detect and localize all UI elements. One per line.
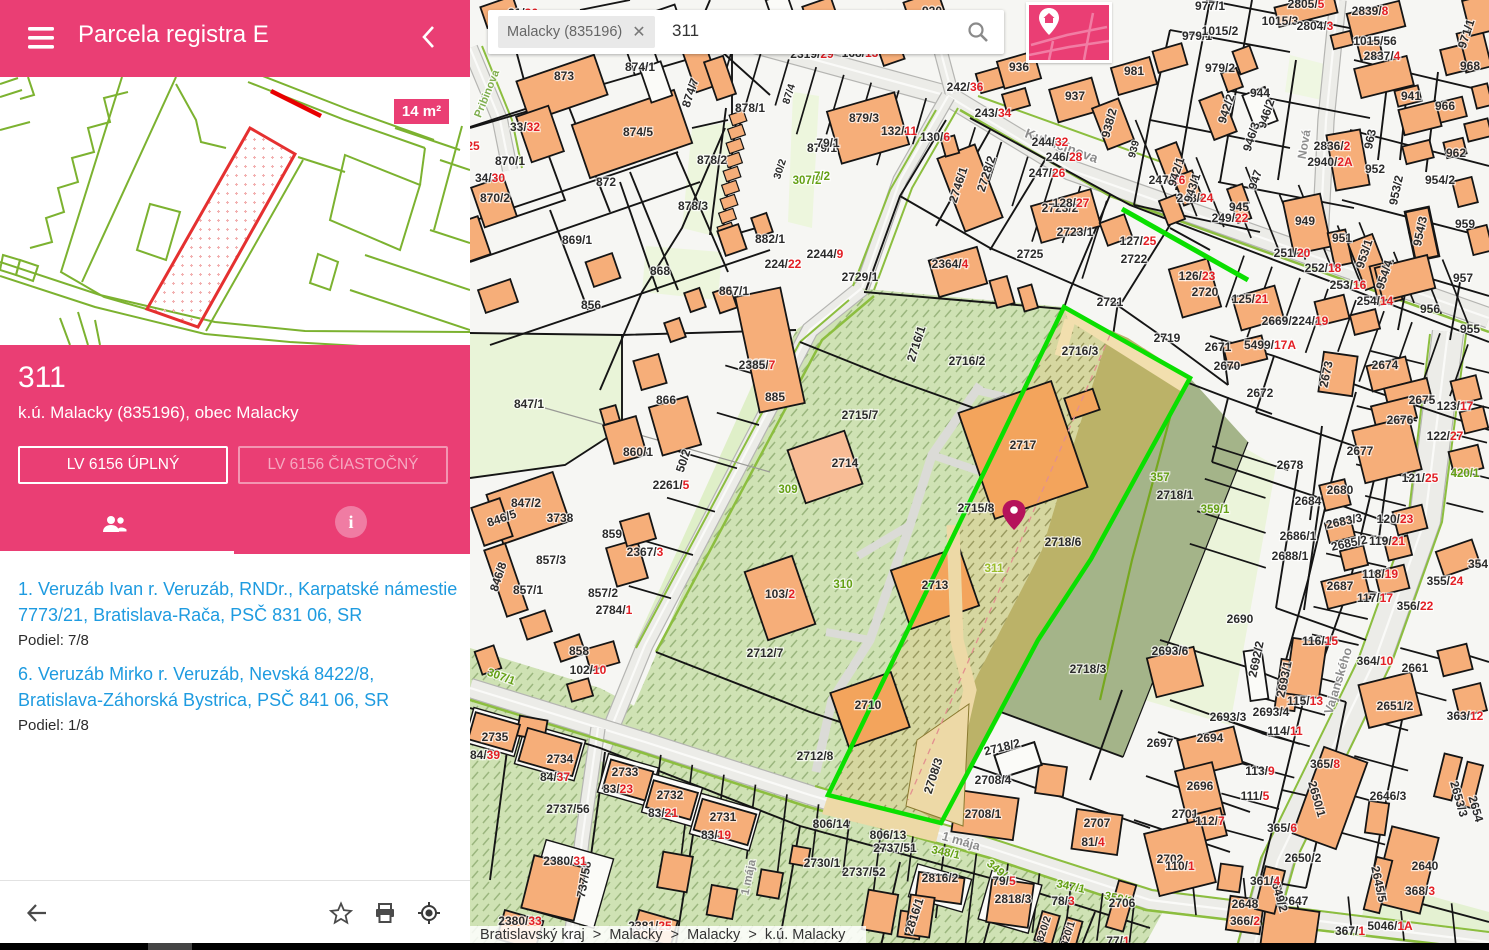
svg-text:1015/3: 1015/3 [1262, 14, 1299, 28]
svg-text:119/21: 119/21 [1369, 534, 1405, 548]
svg-text:244/32: 244/32 [1032, 135, 1069, 149]
svg-text:34/30: 34/30 [475, 171, 505, 185]
svg-text:311: 311 [984, 561, 1004, 575]
svg-text:847/2: 847/2 [511, 496, 541, 510]
svg-text:2732: 2732 [657, 788, 684, 802]
svg-text:2730/1: 2730/1 [804, 856, 841, 870]
svg-text:952: 952 [1365, 162, 1385, 176]
svg-text:81/4: 81/4 [1081, 835, 1105, 849]
svg-text:860/1: 860/1 [623, 445, 653, 459]
svg-text:3738: 3738 [547, 511, 574, 525]
svg-text:2839/8: 2839/8 [1352, 4, 1389, 18]
svg-text:869/1: 869/1 [562, 233, 592, 247]
svg-text:364/10: 364/10 [1357, 654, 1394, 668]
svg-text:867/1: 867/1 [719, 284, 749, 298]
svg-text:247/26: 247/26 [1029, 166, 1066, 180]
svg-text:2687: 2687 [1327, 579, 1354, 593]
svg-text:2671: 2671 [1205, 340, 1232, 354]
svg-text:117/17: 117/17 [1357, 591, 1393, 605]
svg-text:83/21: 83/21 [648, 806, 678, 820]
svg-text:111/5: 111/5 [1241, 789, 1270, 803]
svg-text:5046/1A: 5046/1A [1367, 919, 1413, 933]
svg-text:981: 981 [1124, 64, 1144, 78]
svg-text:866: 866 [656, 393, 676, 407]
svg-text:979/2: 979/2 [1205, 61, 1235, 75]
svg-text:116/15: 116/15 [1302, 634, 1338, 648]
svg-text:2367/3: 2367/3 [627, 545, 664, 559]
svg-text:2706: 2706 [1109, 896, 1136, 910]
svg-text:2718/3: 2718/3 [1070, 662, 1107, 676]
svg-text:5499/17A: 5499/17A [1244, 338, 1296, 352]
svg-text:2707: 2707 [1084, 816, 1111, 830]
svg-text:120/23: 120/23 [1377, 512, 1414, 526]
svg-text:2713: 2713 [922, 578, 949, 592]
svg-text:356/22: 356/22 [1397, 599, 1434, 613]
svg-text:968: 968 [1460, 59, 1480, 73]
svg-text:2722: 2722 [1121, 252, 1148, 266]
svg-text:113/9: 113/9 [1245, 764, 1275, 778]
svg-text:2712/7: 2712/7 [747, 646, 784, 660]
svg-text:2678: 2678 [1277, 458, 1304, 472]
svg-text:2719: 2719 [1154, 331, 1181, 345]
svg-text:2669/2: 2669/2 [1262, 314, 1299, 328]
svg-text:2244/9: 2244/9 [807, 247, 844, 261]
svg-text:2715/8: 2715/8 [958, 501, 995, 515]
svg-text:2675: 2675 [1409, 393, 1436, 407]
svg-text:806/14: 806/14 [813, 817, 850, 831]
svg-text:2661: 2661 [1402, 661, 1429, 675]
svg-text:2725: 2725 [1017, 247, 1044, 261]
svg-text:2723/1: 2723/1 [1057, 225, 1094, 239]
svg-text:966: 966 [1435, 99, 1455, 113]
svg-text:33/32: 33/32 [510, 120, 540, 134]
svg-text:957: 957 [1453, 271, 1473, 285]
svg-text:2677: 2677 [1347, 444, 1374, 458]
svg-text:367/1: 367/1 [1335, 924, 1365, 938]
svg-text:251/20: 251/20 [1274, 246, 1311, 260]
svg-text:872: 872 [596, 175, 616, 189]
svg-text:2716/2: 2716/2 [949, 354, 986, 368]
svg-text:83/23: 83/23 [603, 782, 633, 796]
svg-text:2693/3: 2693/3 [1210, 710, 1247, 724]
svg-text:806/13: 806/13 [870, 828, 907, 842]
svg-text:2737/52: 2737/52 [842, 865, 886, 879]
svg-text:246/28: 246/28 [1046, 150, 1083, 164]
svg-text:882/1: 882/1 [755, 232, 785, 246]
svg-text:857/1: 857/1 [513, 583, 543, 597]
svg-text:310: 310 [833, 579, 852, 591]
svg-text:945: 945 [1229, 200, 1249, 214]
svg-text:122/27: 122/27 [1427, 429, 1464, 443]
svg-text:243/34: 243/34 [975, 106, 1012, 120]
svg-text:123/17: 123/17 [1437, 399, 1474, 413]
svg-text:363/12: 363/12 [1447, 709, 1484, 723]
svg-text:2816/2: 2816/2 [922, 871, 959, 885]
svg-text:870/1: 870/1 [495, 154, 525, 168]
svg-text:84/39: 84/39 [470, 748, 500, 762]
svg-text:2651/2: 2651/2 [1377, 699, 1414, 713]
svg-text:951: 951 [1332, 231, 1352, 245]
svg-text:2731: 2731 [710, 810, 737, 824]
svg-text:944: 944 [1250, 86, 1270, 100]
svg-text:977/1: 977/1 [1195, 0, 1225, 13]
svg-text:2714: 2714 [832, 456, 859, 470]
svg-text:2710: 2710 [855, 698, 882, 712]
svg-text:2686/1: 2686/1 [1280, 529, 1317, 543]
svg-text:420/1: 420/1 [1451, 468, 1480, 480]
svg-text:2680: 2680 [1327, 483, 1354, 497]
svg-text:2940/2A: 2940/2A [1307, 155, 1353, 169]
svg-text:359/1: 359/1 [1201, 504, 1230, 516]
svg-text:2684: 2684 [1295, 494, 1322, 508]
svg-text:365/8: 365/8 [1310, 757, 1340, 771]
svg-text:954/2: 954/2 [1425, 173, 1455, 187]
svg-text:859: 859 [602, 527, 622, 541]
svg-text:878/3: 878/3 [678, 199, 708, 213]
svg-text:365/6: 365/6 [1267, 821, 1297, 835]
svg-text:7/2: 7/2 [814, 171, 830, 183]
svg-text:2837/4: 2837/4 [1364, 49, 1401, 63]
svg-text:2261/5: 2261/5 [653, 478, 690, 492]
svg-text:2734: 2734 [547, 752, 574, 766]
svg-text:2688/1: 2688/1 [1272, 549, 1309, 563]
svg-text:126/23: 126/23 [1179, 269, 1216, 283]
svg-text:2784/1: 2784/1 [596, 603, 633, 617]
svg-text:2385/7: 2385/7 [739, 358, 776, 372]
svg-text:2694: 2694 [1197, 731, 1224, 745]
svg-text:2718/6: 2718/6 [1045, 535, 1082, 549]
svg-text:354: 354 [1468, 557, 1488, 571]
svg-text:2650/2: 2650/2 [1285, 851, 1322, 865]
svg-text:2696: 2696 [1187, 779, 1214, 793]
svg-text:2735: 2735 [482, 730, 509, 744]
svg-text:2697: 2697 [1147, 736, 1174, 750]
svg-text:2364/4: 2364/4 [932, 257, 969, 271]
svg-text:2672: 2672 [1247, 386, 1274, 400]
svg-text:83/19: 83/19 [701, 828, 731, 842]
svg-text:857/2: 857/2 [588, 586, 618, 600]
svg-text:868: 868 [650, 264, 670, 278]
svg-text:366/2: 366/2 [1230, 914, 1260, 928]
svg-text:885: 885 [765, 390, 785, 404]
svg-text:2804/3: 2804/3 [1297, 19, 1334, 33]
svg-text:127/25: 127/25 [1120, 234, 1157, 248]
svg-text:132/11: 132/11 [881, 124, 917, 138]
svg-text:84/37: 84/37 [540, 770, 570, 784]
svg-text:118/19: 118/19 [1362, 567, 1398, 581]
svg-text:2648: 2648 [1232, 897, 1259, 911]
svg-text:125/21: 125/21 [1232, 292, 1269, 306]
svg-text:102/10: 102/10 [570, 663, 607, 677]
svg-text:224/22: 224/22 [765, 257, 802, 271]
svg-text:2646/3: 2646/3 [1370, 789, 1407, 803]
svg-text:121/25: 121/25 [1402, 471, 1439, 485]
svg-text:857/3: 857/3 [536, 553, 566, 567]
svg-text:2720: 2720 [1192, 285, 1219, 299]
svg-text:2836/2: 2836/2 [1314, 139, 1351, 153]
svg-text:1015/2: 1015/2 [1202, 24, 1239, 38]
svg-text:2805/5: 2805/5 [1288, 0, 1325, 11]
svg-text:25: 25 [470, 139, 480, 153]
svg-text:110/1: 110/1 [1165, 859, 1195, 873]
svg-text:2717: 2717 [1010, 438, 1037, 452]
svg-text:2737/56: 2737/56 [546, 802, 590, 816]
svg-text:2716/3: 2716/3 [1062, 344, 1099, 358]
svg-text:2715/7: 2715/7 [842, 408, 879, 422]
svg-text:78/3: 78/3 [1051, 894, 1075, 908]
svg-text:254/14: 254/14 [1357, 294, 1394, 308]
svg-text:112/7: 112/7 [1195, 814, 1225, 828]
svg-text:355/24: 355/24 [1427, 574, 1464, 588]
svg-text:2693/4: 2693/4 [1253, 705, 1290, 719]
svg-text:2818/3: 2818/3 [995, 892, 1032, 906]
svg-text:2690: 2690 [1227, 612, 1254, 626]
svg-text:878/2: 878/2 [697, 153, 727, 167]
svg-text:2721: 2721 [1097, 295, 1124, 309]
svg-text:2380/31: 2380/31 [543, 854, 587, 868]
svg-text:368/3: 368/3 [1405, 884, 1435, 898]
svg-text:357: 357 [1150, 472, 1169, 484]
svg-text:874/5: 874/5 [623, 125, 653, 139]
svg-text:114/11: 114/11 [1267, 724, 1303, 738]
svg-text:2708/4: 2708/4 [975, 773, 1012, 787]
svg-text:870/2: 870/2 [480, 191, 510, 205]
svg-text:1015/56: 1015/56 [1353, 34, 1397, 48]
svg-text:2640: 2640 [1412, 859, 1439, 873]
svg-text:937: 937 [1065, 89, 1085, 103]
svg-text:2712/8: 2712/8 [797, 749, 834, 763]
svg-text:130/6: 130/6 [920, 130, 950, 144]
svg-text:79/5: 79/5 [992, 874, 1016, 888]
svg-text:361/4: 361/4 [1250, 874, 1280, 888]
svg-text:941: 941 [1401, 89, 1421, 103]
svg-text:103/2: 103/2 [765, 587, 795, 601]
svg-text:252/18: 252/18 [1305, 261, 1342, 275]
svg-text:309: 309 [778, 484, 797, 496]
svg-text:242/36: 242/36 [947, 80, 984, 94]
svg-text:949: 949 [1295, 214, 1315, 228]
svg-text:847/1: 847/1 [514, 397, 544, 411]
svg-text:115/13: 115/13 [1287, 694, 1323, 708]
svg-text:2737/51: 2737/51 [873, 841, 917, 855]
svg-text:2676: 2676 [1387, 413, 1414, 427]
svg-text:2708/1: 2708/1 [965, 807, 1002, 821]
svg-text:879/3: 879/3 [849, 111, 879, 125]
svg-text:253/16: 253/16 [1330, 278, 1367, 292]
svg-text:878/1: 878/1 [735, 101, 765, 115]
svg-text:128/27: 128/27 [1053, 196, 1090, 210]
svg-text:874/1: 874/1 [625, 60, 655, 74]
svg-text:955: 955 [1460, 322, 1480, 336]
svg-text:856: 856 [581, 298, 601, 312]
svg-text:2674: 2674 [1372, 358, 1399, 372]
svg-text:962: 962 [1446, 146, 1466, 160]
svg-text:2670: 2670 [1214, 359, 1241, 373]
svg-text:79/1: 79/1 [816, 136, 840, 150]
svg-text:2729/1: 2729/1 [842, 270, 879, 284]
svg-text:2693/6: 2693/6 [1152, 644, 1189, 658]
svg-text:959: 959 [1455, 217, 1475, 231]
svg-text:873: 873 [554, 69, 574, 83]
svg-text:858: 858 [569, 644, 589, 658]
svg-text:2733: 2733 [612, 765, 639, 779]
svg-text:956: 956 [1420, 302, 1440, 316]
svg-text:2718/1: 2718/1 [1157, 488, 1194, 502]
